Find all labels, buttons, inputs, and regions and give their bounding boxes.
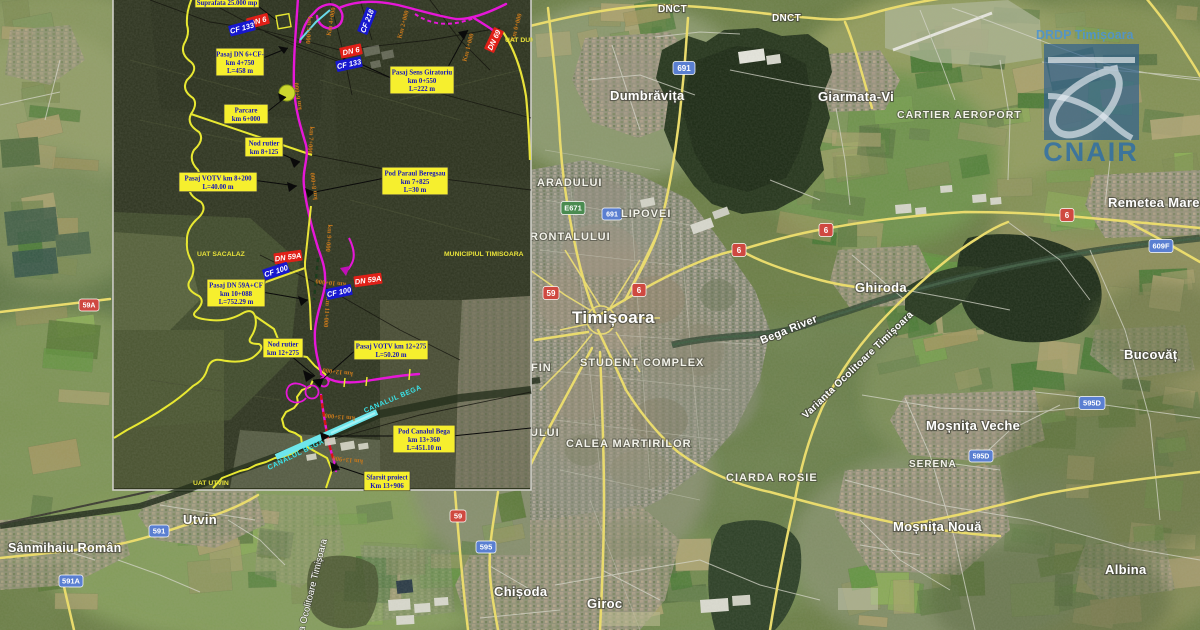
svg-text:STUDENT COMPLEX: STUDENT COMPLEX bbox=[580, 357, 704, 369]
svg-text:km 13+360: km 13+360 bbox=[408, 437, 441, 444]
svg-text:59: 59 bbox=[547, 289, 556, 298]
svg-text:SERENA: SERENA bbox=[909, 459, 957, 470]
svg-text:59: 59 bbox=[454, 512, 462, 521]
svg-text:Pasaj DN 6+CF-: Pasaj DN 6+CF- bbox=[216, 52, 264, 59]
svg-text:Moșnița Nouă: Moșnița Nouă bbox=[893, 519, 982, 534]
svg-text:Sânmihaiu Român: Sânmihaiu Român bbox=[8, 541, 122, 555]
svg-text:ULUI: ULUI bbox=[530, 427, 560, 439]
svg-text:Pod Canalul Bega: Pod Canalul Bega bbox=[398, 429, 451, 436]
svg-text:L=458 m: L=458 m bbox=[227, 68, 253, 75]
svg-text:691: 691 bbox=[606, 212, 618, 219]
svg-text:591A: 591A bbox=[62, 577, 81, 586]
svg-text:Pasaj DN 59A+CF: Pasaj DN 59A+CF bbox=[209, 283, 263, 290]
svg-text:L=451.10 m: L=451.10 m bbox=[407, 445, 442, 452]
svg-text:Pasaj VOTV km 8+200: Pasaj VOTV km 8+200 bbox=[184, 176, 252, 183]
svg-text:DNCT: DNCT bbox=[658, 4, 687, 15]
svg-text:L=222 m: L=222 m bbox=[409, 86, 435, 93]
svg-text:UAT SACALAZ: UAT SACALAZ bbox=[197, 251, 245, 258]
svg-text:6: 6 bbox=[1065, 211, 1070, 220]
svg-text:km 12+275: km 12+275 bbox=[267, 350, 300, 357]
svg-text:Remetea Mare: Remetea Mare bbox=[1108, 195, 1200, 210]
svg-text:Bucovăț: Bucovăț bbox=[1124, 347, 1178, 362]
svg-text:Pasaj Sens Giratoriu: Pasaj Sens Giratoriu bbox=[392, 70, 453, 77]
svg-text:595D: 595D bbox=[1083, 399, 1102, 408]
svg-text:Km 13+906: Km 13+906 bbox=[370, 483, 404, 490]
svg-text:Pod Paraul Beregsau: Pod Paraul Beregsau bbox=[384, 171, 445, 178]
svg-text:6: 6 bbox=[824, 226, 829, 235]
svg-text:Moșnița Veche: Moșnița Veche bbox=[926, 418, 1020, 433]
svg-text:Dumbrăvița: Dumbrăvița bbox=[610, 88, 685, 103]
svg-text:Nod rutier: Nod rutier bbox=[249, 141, 280, 148]
svg-text:Albina: Albina bbox=[1105, 562, 1147, 577]
svg-text:Giarmata-Vi: Giarmata-Vi bbox=[818, 89, 894, 104]
svg-text:Pasaj VOTV km 12+275: Pasaj VOTV km 12+275 bbox=[356, 344, 427, 351]
svg-text:km 0+550: km 0+550 bbox=[408, 78, 437, 85]
svg-text:L=50.20 m: L=50.20 m bbox=[375, 352, 406, 359]
svg-text:km 6+000: km 6+000 bbox=[232, 116, 261, 123]
svg-text:Utvin: Utvin bbox=[183, 512, 217, 527]
svg-text:CARTIER AEROPORT: CARTIER AEROPORT bbox=[897, 109, 1022, 121]
svg-text:Giroc: Giroc bbox=[587, 596, 622, 611]
svg-text:DRDP Timișoara: DRDP Timișoara bbox=[1036, 28, 1135, 42]
svg-text:L=752.29 m: L=752.29 m bbox=[219, 299, 254, 306]
svg-text:ARADULUI: ARADULUI bbox=[537, 177, 602, 189]
svg-text:CALEA MARTIRILOR: CALEA MARTIRILOR bbox=[566, 438, 692, 450]
svg-text:595D: 595D bbox=[973, 454, 990, 461]
svg-text:CNAIR: CNAIR bbox=[1043, 137, 1139, 167]
svg-text:km 8+125: km 8+125 bbox=[250, 149, 279, 156]
svg-text:Nod rutier: Nod rutier bbox=[268, 342, 299, 349]
svg-text:E671: E671 bbox=[564, 204, 582, 213]
svg-text:609F: 609F bbox=[1152, 242, 1170, 251]
svg-text:RONTALULUI: RONTALULUI bbox=[530, 231, 611, 243]
svg-text:Sfarsit proiect: Sfarsit proiect bbox=[366, 475, 408, 482]
svg-text:MUNICIPIUL TIMISOARA: MUNICIPIUL TIMISOARA bbox=[444, 251, 524, 258]
svg-text:591: 591 bbox=[153, 527, 166, 536]
svg-text:km 10+088: km 10+088 bbox=[220, 291, 253, 298]
svg-text:UAT UTVIN: UAT UTVIN bbox=[193, 480, 229, 487]
svg-text:691: 691 bbox=[677, 64, 691, 73]
svg-text:6: 6 bbox=[637, 286, 642, 295]
svg-text:59A: 59A bbox=[83, 303, 96, 310]
svg-text:Parcare: Parcare bbox=[235, 108, 258, 115]
svg-text:UAT DUM: UAT DUM bbox=[505, 37, 536, 44]
svg-text:CIARDA ROSIE: CIARDA ROSIE bbox=[726, 472, 818, 484]
svg-text:km 7+825: km 7+825 bbox=[401, 179, 430, 186]
svg-text:Suprafata 25.000 mp: Suprafata 25.000 mp bbox=[197, 0, 258, 7]
svg-text:595: 595 bbox=[480, 543, 493, 552]
svg-text:Timișoara: Timișoara bbox=[572, 308, 655, 327]
svg-text:km 4+750: km 4+750 bbox=[226, 60, 255, 67]
svg-text:FIN: FIN bbox=[531, 362, 552, 374]
svg-text:L=30 m: L=30 m bbox=[404, 187, 427, 194]
svg-text:DNCT: DNCT bbox=[772, 13, 801, 24]
svg-text:Ghiroda: Ghiroda bbox=[855, 280, 907, 295]
svg-text:6: 6 bbox=[737, 246, 742, 255]
svg-text:LIPOVEI: LIPOVEI bbox=[621, 208, 671, 220]
svg-text:Chișoda: Chișoda bbox=[494, 584, 548, 599]
svg-text:L=40.00 m: L=40.00 m bbox=[202, 184, 233, 191]
